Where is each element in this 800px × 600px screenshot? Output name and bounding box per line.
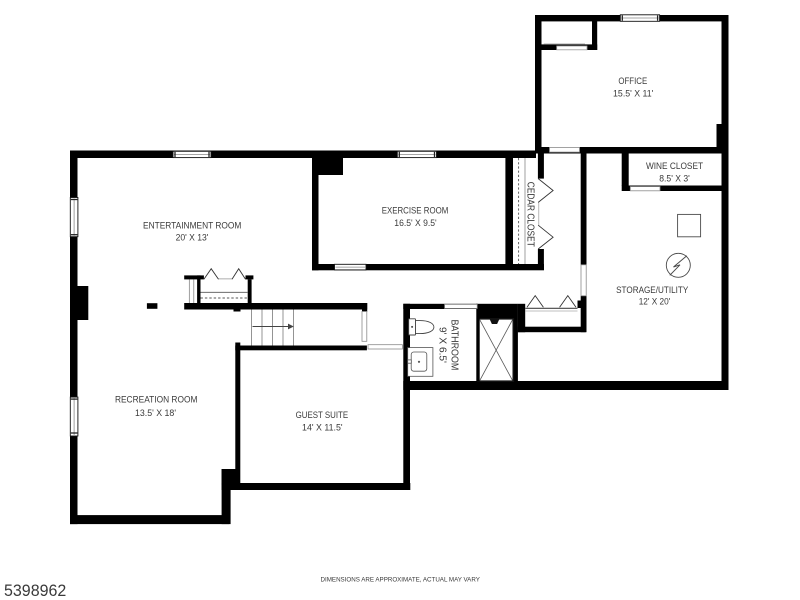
svg-text:WINE CLOSET: WINE CLOSET (646, 161, 703, 171)
svg-text:STORAGE/UTILITY: STORAGE/UTILITY (616, 285, 688, 295)
svg-text:5398962: 5398962 (4, 581, 66, 600)
svg-text:RECREATION ROOM: RECREATION ROOM (115, 395, 198, 405)
svg-text:13.5' X 18': 13.5' X 18' (135, 408, 176, 418)
svg-text:EXERCISE ROOM: EXERCISE ROOM (382, 205, 449, 215)
svg-text:14' X 11.5': 14' X 11.5' (302, 423, 343, 433)
svg-text:CEDAR CLOSET: CEDAR CLOSET (524, 182, 535, 247)
svg-text:BATHROOM: BATHROOM (449, 320, 460, 371)
svg-text:ENTERTAINMENT ROOM: ENTERTAINMENT ROOM (143, 220, 241, 230)
svg-text:OFFICE: OFFICE (618, 76, 647, 86)
svg-text:8.5' X 3': 8.5' X 3' (659, 174, 690, 184)
svg-text:16.5' X 9.5': 16.5' X 9.5' (394, 218, 437, 228)
svg-text:9' X 6.5': 9' X 6.5' (437, 327, 448, 363)
svg-text:GUEST SUITE: GUEST SUITE (296, 410, 349, 420)
svg-text:DIMENSIONS ARE APPROXIMATE, AC: DIMENSIONS ARE APPROXIMATE, ACTUAL MAY V… (321, 576, 481, 583)
svg-text:20' X 13': 20' X 13' (176, 233, 209, 243)
svg-text:15.5' X 11': 15.5' X 11' (613, 89, 654, 99)
svg-text:12' X 20': 12' X 20' (639, 296, 671, 306)
